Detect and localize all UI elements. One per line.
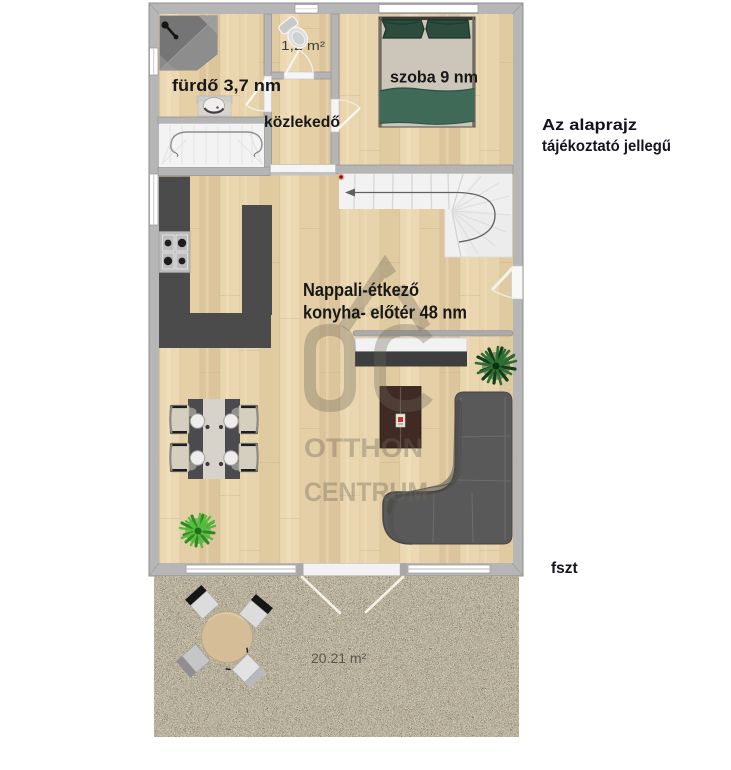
svg-text:fszt: fszt (551, 560, 578, 577)
svg-text:20.21 m²: 20.21 m² (311, 650, 367, 666)
svg-text:tájékoztató jellegű: tájékoztató jellegű (542, 138, 671, 155)
svg-text:OTTHON: OTTHON (304, 433, 423, 463)
svg-text:Nappali-étkező: Nappali-étkező (303, 279, 419, 300)
svg-text:Az alaprajz: Az alaprajz (542, 117, 637, 134)
svg-text:szoba 9 nm: szoba 9 nm (390, 69, 478, 87)
svg-text:fürdő 3,7 nm: fürdő 3,7 nm (172, 77, 281, 95)
svg-text:konyha- előtér 48 nm: konyha- előtér 48 nm (303, 302, 467, 323)
svg-text:közlekedő: közlekedő (264, 114, 340, 131)
svg-text:CENTRUM: CENTRUM (304, 477, 428, 507)
